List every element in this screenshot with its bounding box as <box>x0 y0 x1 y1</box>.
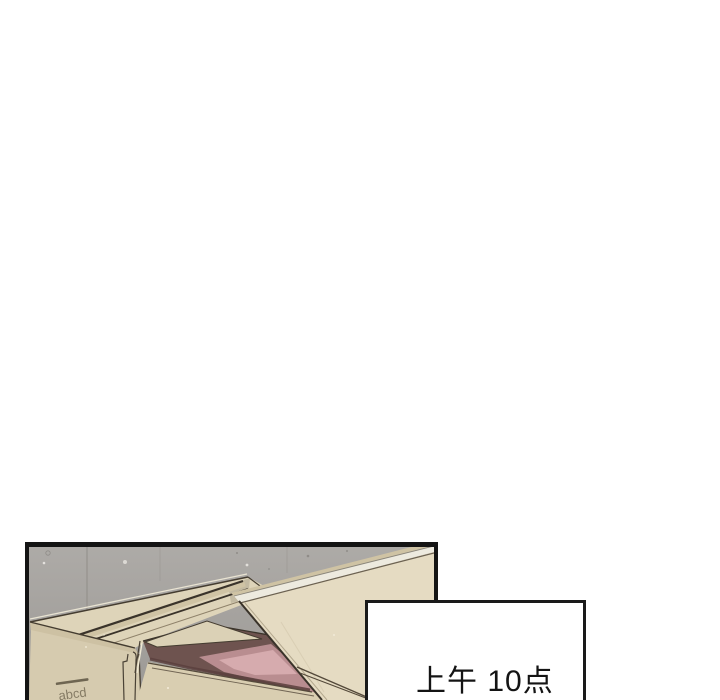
caption-box: 上午 10点 <box>365 600 586 700</box>
webtoon-page: abcd <box>0 0 720 700</box>
box-logo-text: abcd <box>57 684 87 700</box>
caption-text: 上午 10点 <box>416 665 554 699</box>
page-whitespace <box>0 0 720 543</box>
